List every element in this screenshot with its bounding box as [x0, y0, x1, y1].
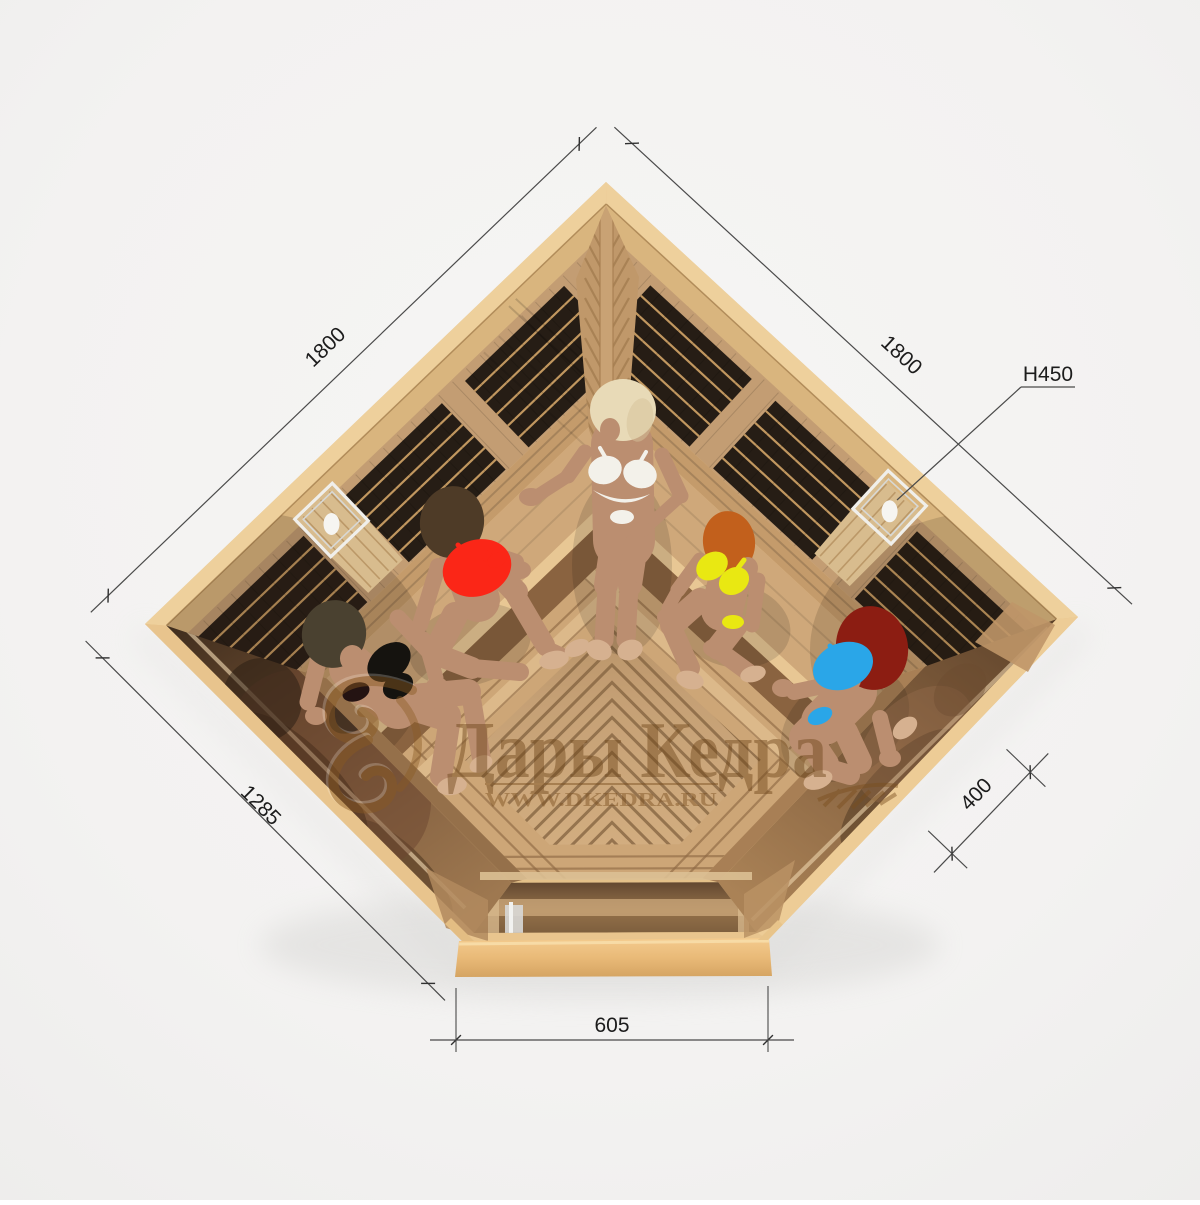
svg-text:605: 605 — [594, 1014, 629, 1037]
svg-text:H450: H450 — [1023, 363, 1073, 386]
svg-text:WWW.DKEDRA.RU: WWW.DKEDRA.RU — [485, 789, 717, 811]
svg-text:Дары Кедра: Дары Кедра — [447, 707, 827, 795]
